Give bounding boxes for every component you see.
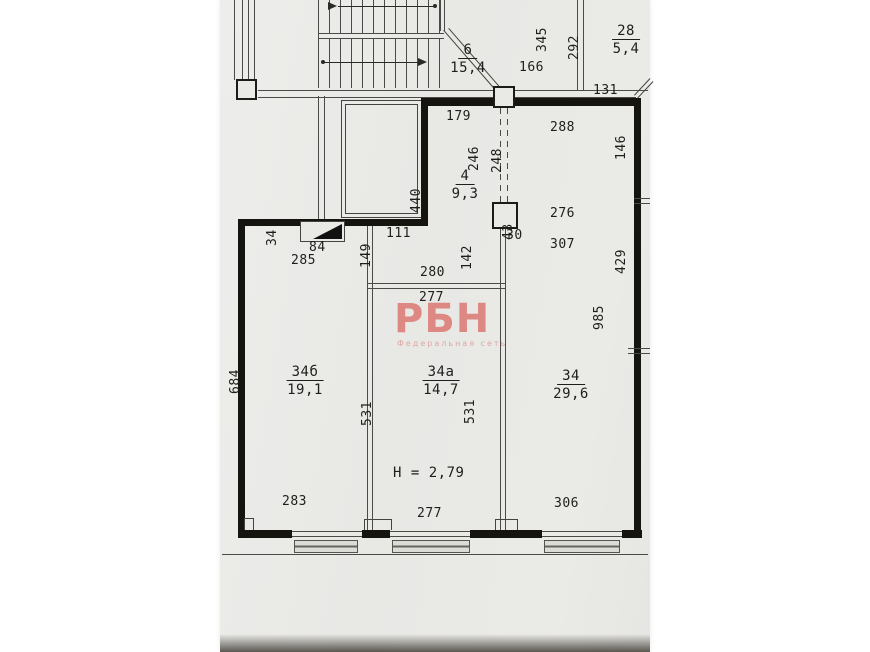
stair-edge [440, 0, 441, 31]
opening-dashed-line [507, 108, 508, 203]
stair-direction-arrow [328, 2, 337, 10]
stair-tread [362, 0, 363, 33]
stair-tread [406, 38, 407, 88]
dim-label: 34 [265, 229, 280, 246]
room-area: 19,1 [287, 381, 323, 398]
room-number: 34а [423, 364, 460, 381]
wall-segment [324, 96, 325, 223]
wall-post [493, 86, 515, 108]
room-label-6: 6 15,4 [450, 42, 486, 76]
unit-wall-right [634, 98, 641, 538]
window-line [542, 536, 622, 537]
room-number: 34 [557, 368, 585, 385]
partition-34b-34a [372, 226, 373, 530]
room-area: 29,6 [553, 385, 589, 402]
stair-tread [439, 38, 440, 88]
dim-label: 429 [614, 249, 629, 274]
unit-wall-top [423, 98, 637, 106]
dim-label: 149 [359, 243, 374, 268]
room-number: 6 [459, 42, 478, 59]
stair-direction-arrow [324, 62, 419, 63]
dim-label: 285 [291, 253, 316, 268]
wall-segment [254, 0, 255, 80]
floorplan-photo: 6 15,4 28 5,4 4 9,3 34б 19,1 34а 14,7 34… [0, 0, 870, 652]
dim-label: 179 [446, 109, 471, 124]
wall-tick [634, 203, 650, 204]
room-label-34b: 34б 19,1 [287, 364, 324, 398]
dim-label: 131 [593, 83, 618, 98]
facade-line [222, 554, 648, 555]
stair-direction-arrow [338, 6, 434, 7]
wall-segment [583, 0, 584, 90]
dim-label: 985 [592, 305, 607, 330]
window-line [542, 531, 622, 532]
stair-tread [340, 38, 341, 88]
wall-notch [364, 519, 392, 530]
stair-tread [362, 38, 363, 88]
wall-notch [495, 519, 518, 530]
dim-label: 292 [567, 35, 582, 60]
room-number: 34б [287, 364, 324, 381]
stair-tread [340, 0, 341, 33]
dim-label: 246 [467, 146, 482, 171]
window-sill [294, 540, 358, 553]
window-line [390, 531, 470, 532]
dim-label: 280 [420, 265, 445, 280]
stair-tread [351, 38, 352, 88]
dim-label: 306 [554, 496, 579, 511]
ceiling-height-label: H = 2,79 [393, 466, 464, 481]
wall-segment [248, 0, 249, 80]
stair-tread [351, 0, 352, 33]
room-label-34: 34 29,6 [553, 368, 589, 402]
dim-label: 283 [282, 494, 307, 509]
wall-notch [244, 518, 254, 530]
stair-tread [428, 0, 429, 33]
partition-34b-34a [367, 226, 368, 530]
window-line [390, 536, 470, 537]
dim-label: 146 [614, 135, 629, 160]
partition-34a-top [367, 288, 505, 289]
room-label-28: 28 5,4 [612, 23, 640, 57]
window-sill [544, 540, 620, 553]
room-label-4: 4 9,3 [452, 168, 479, 202]
stair-tread [373, 38, 374, 88]
window-line [292, 531, 362, 532]
room-label-34a: 34а 14,7 [423, 364, 460, 398]
dim-label: 345 [535, 27, 550, 52]
partition-34a-34 [505, 229, 506, 530]
dim-label: 43 [501, 223, 516, 240]
dim-label: 166 [519, 60, 544, 75]
wall-segment [242, 0, 243, 80]
dim-label: 307 [550, 237, 575, 252]
stair-tread [428, 38, 429, 88]
stair-landing-line [318, 33, 444, 34]
stair-edge [318, 0, 319, 88]
column [236, 79, 257, 100]
room-area: 9,3 [452, 185, 479, 202]
stair-tread [395, 38, 396, 88]
stair-direction-arrow [433, 4, 437, 8]
window-sill [392, 540, 470, 553]
photo-bottom-shadow [220, 634, 650, 652]
wall-tick [634, 198, 650, 199]
wall-tick [628, 353, 650, 354]
stair-tread [329, 38, 330, 88]
partition-34a-34 [500, 229, 501, 530]
dim-label: 531 [360, 401, 375, 426]
wall-tick [628, 348, 650, 349]
dim-label: 276 [550, 206, 575, 221]
stair-tread [395, 0, 396, 33]
stair-landing-line [318, 38, 444, 39]
dim-label: 531 [463, 399, 478, 424]
stair-tread [417, 0, 418, 33]
dim-label: 142 [460, 245, 475, 270]
shaft-outline [345, 104, 418, 214]
room-number: 28 [612, 23, 640, 40]
watermark-subtitle: Федеральная сеть [397, 339, 507, 348]
dim-label: 684 [228, 369, 243, 394]
wall-segment [318, 96, 319, 223]
stair-direction-arrow [418, 58, 427, 66]
stair-tread [384, 0, 385, 33]
stair-tread [373, 0, 374, 33]
watermark-logo: РБН [394, 300, 490, 338]
stair-tread [384, 38, 385, 88]
partition-34a-top [367, 283, 505, 284]
dim-label: 440 [409, 188, 424, 213]
stair-tread [406, 0, 407, 33]
dim-label: 111 [386, 226, 411, 241]
dim-label: 277 [417, 506, 442, 521]
window-line [292, 536, 362, 537]
wall-segment [234, 0, 235, 80]
room-area: 14,7 [423, 381, 459, 398]
room-area: 5,4 [613, 40, 640, 57]
dim-label: 288 [550, 120, 575, 135]
room-area: 15,4 [450, 59, 486, 76]
dim-label: 248 [490, 148, 505, 173]
stair-edge [444, 0, 445, 31]
wall-segment [258, 90, 648, 91]
